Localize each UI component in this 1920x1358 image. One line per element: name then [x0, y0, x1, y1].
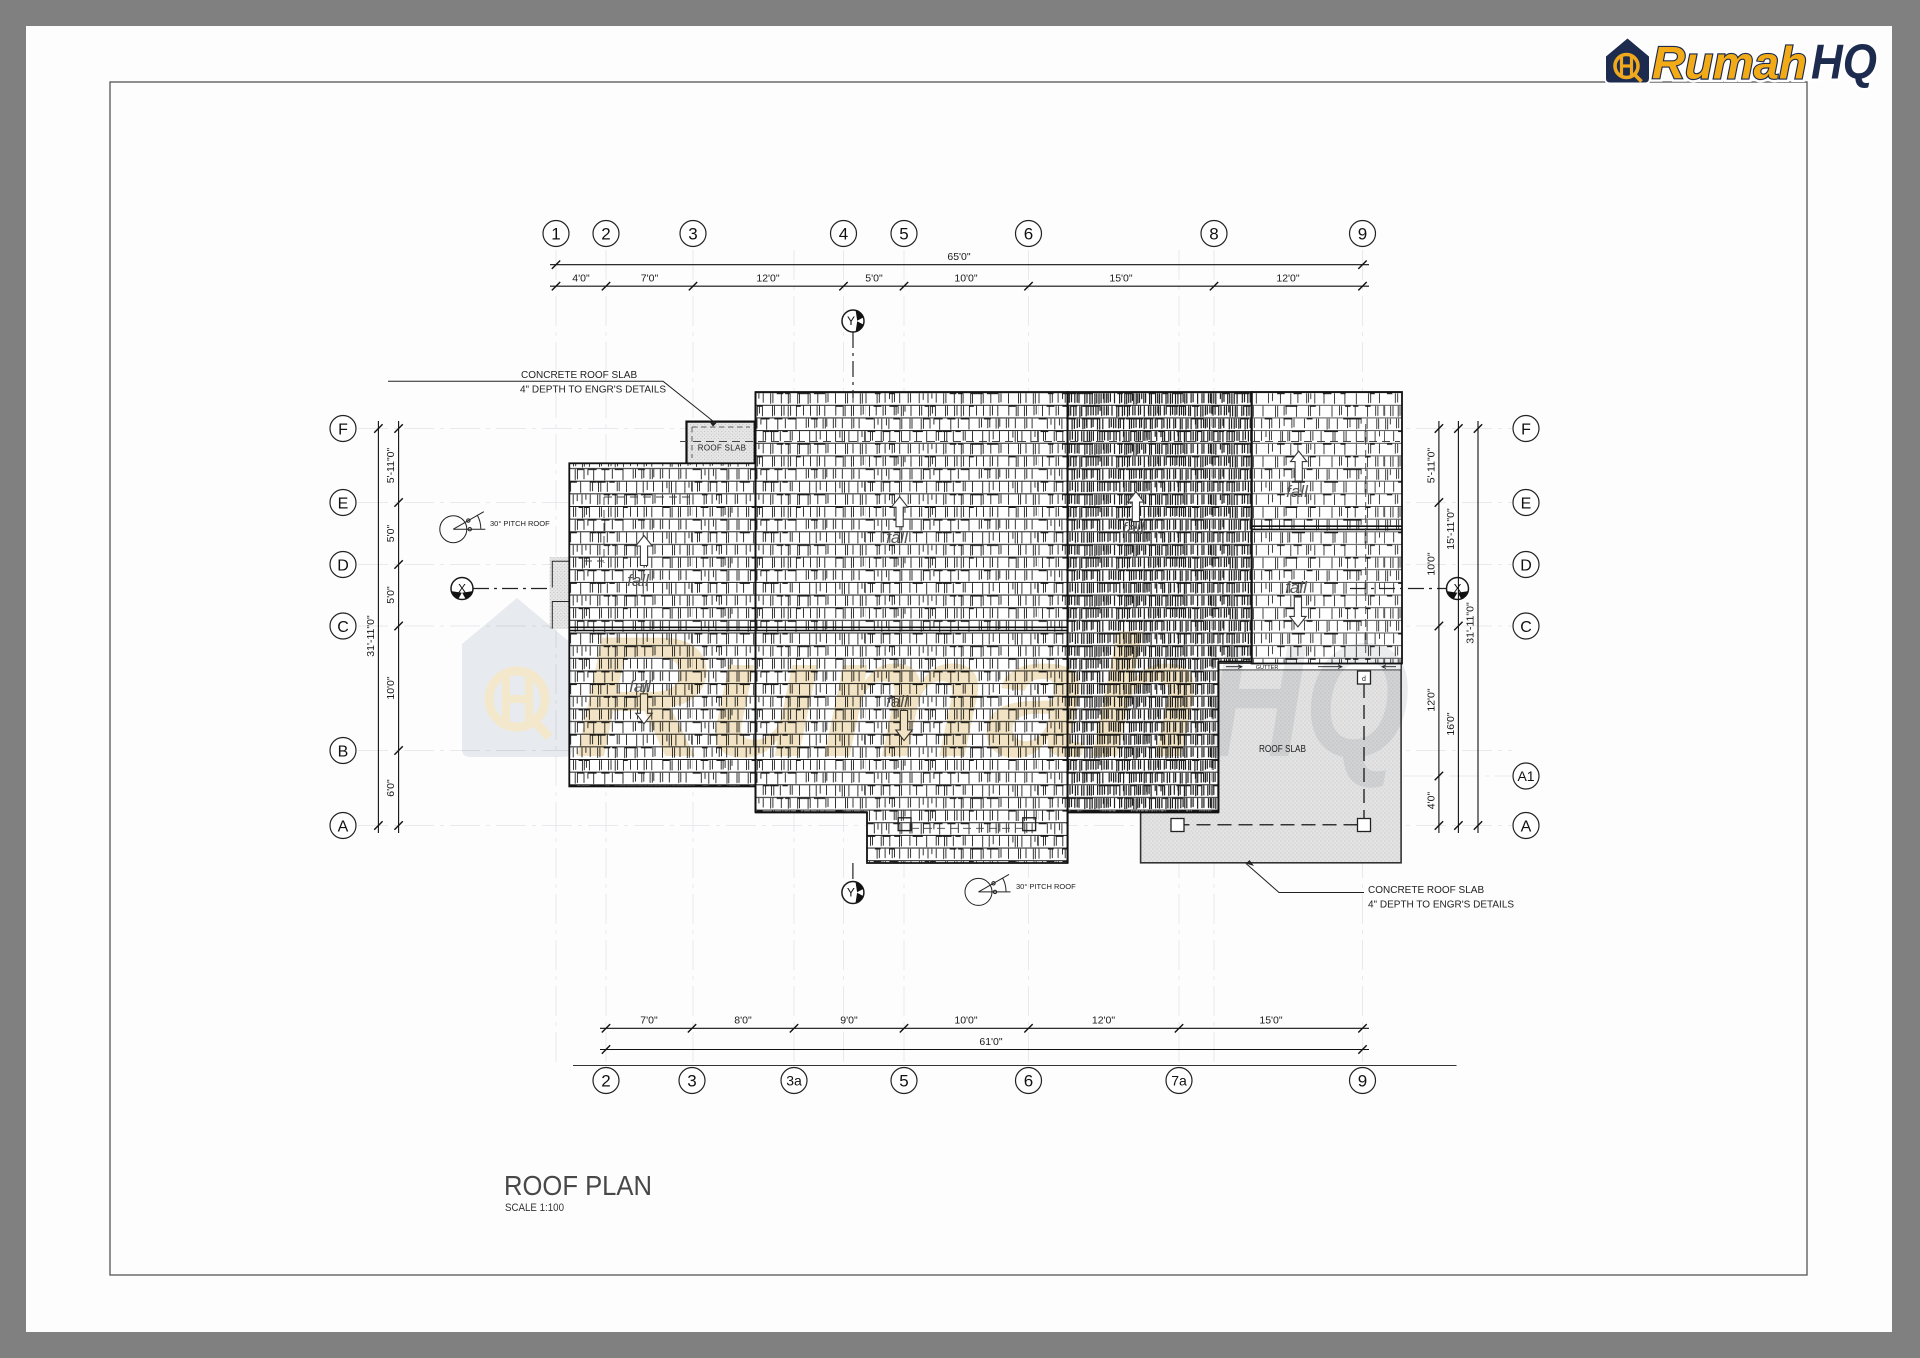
- svg-text:X: X: [458, 582, 466, 596]
- svg-text:3a: 3a: [786, 1073, 802, 1089]
- svg-text:7'0": 7'0": [641, 273, 659, 285]
- svg-text:8: 8: [1209, 225, 1218, 244]
- svg-text:3: 3: [688, 225, 697, 244]
- svg-text:15'0": 15'0": [1259, 1015, 1283, 1027]
- svg-text:12'0": 12'0": [1276, 273, 1300, 285]
- svg-text:6: 6: [1024, 225, 1033, 244]
- svg-text:4'0": 4'0": [1426, 792, 1438, 810]
- svg-text:A: A: [338, 818, 349, 835]
- svg-text:4" DEPTH TO ENGR'S DETAILS: 4" DEPTH TO ENGR'S DETAILS: [1368, 900, 1514, 911]
- svg-text:10'0": 10'0": [1426, 552, 1438, 576]
- svg-text:B: B: [338, 743, 349, 760]
- svg-text:fall: fall: [1286, 482, 1309, 501]
- svg-text:C: C: [337, 619, 349, 636]
- svg-text:CONCRETE ROOF SLAB: CONCRETE ROOF SLAB: [521, 370, 637, 381]
- svg-text:5'0": 5'0": [865, 273, 883, 285]
- svg-text:Rumah: Rumah: [1652, 38, 1807, 89]
- svg-text:ROOF PLAN: ROOF PLAN: [504, 1170, 652, 1201]
- svg-text:X: X: [1453, 582, 1461, 596]
- svg-text:Rumah: Rumah: [574, 601, 1202, 793]
- svg-text:E: E: [1521, 495, 1532, 512]
- svg-text:A: A: [1521, 818, 1532, 835]
- svg-text:D: D: [1520, 557, 1532, 574]
- svg-text:fall: fall: [627, 571, 650, 590]
- svg-text:12'0": 12'0": [1092, 1015, 1116, 1027]
- svg-text:10'0": 10'0": [385, 676, 397, 700]
- svg-text:30° PITCH ROOF: 30° PITCH ROOF: [490, 519, 550, 528]
- svg-text:15'-11"0": 15'-11"0": [1445, 508, 1457, 550]
- svg-text:9'0": 9'0": [840, 1015, 858, 1027]
- svg-text:65'0": 65'0": [947, 251, 971, 263]
- svg-text:31'-11"0": 31'-11"0": [365, 615, 377, 657]
- svg-text:9: 9: [1358, 1072, 1367, 1091]
- svg-text:E: E: [338, 495, 349, 512]
- svg-text:5: 5: [899, 1072, 908, 1091]
- svg-text:F: F: [1521, 421, 1531, 438]
- svg-text:6'0": 6'0": [385, 779, 397, 797]
- svg-text:SCALE 1:100: SCALE 1:100: [505, 1202, 564, 1214]
- svg-text:F: F: [338, 421, 348, 438]
- svg-text:A1: A1: [1517, 768, 1534, 784]
- svg-text:HQ: HQ: [1811, 36, 1877, 90]
- svg-text:5'-11"0": 5'-11"0": [1426, 447, 1438, 483]
- svg-text:10'0": 10'0": [954, 273, 978, 285]
- svg-text:15'0": 15'0": [1109, 273, 1133, 285]
- svg-text:5'0": 5'0": [385, 586, 397, 604]
- svg-text:10'0": 10'0": [954, 1015, 978, 1027]
- svg-text:Y: Y: [847, 314, 855, 328]
- svg-text:D: D: [337, 557, 349, 574]
- svg-text:16'0": 16'0": [1445, 712, 1457, 736]
- svg-text:12'0": 12'0": [756, 273, 780, 285]
- svg-text:12'0": 12'0": [1426, 688, 1438, 712]
- svg-text:4" DEPTH TO ENGR'S DETAILS: 4" DEPTH TO ENGR'S DETAILS: [520, 385, 666, 396]
- svg-text:Y: Y: [847, 886, 855, 900]
- svg-text:fall: fall: [886, 528, 909, 547]
- svg-text:HQ: HQ: [1206, 610, 1410, 791]
- svg-text:6: 6: [1024, 1072, 1033, 1091]
- svg-text:7'0": 7'0": [640, 1015, 658, 1027]
- svg-text:ROOF SLAB: ROOF SLAB: [698, 444, 747, 453]
- svg-text:8'0": 8'0": [734, 1015, 752, 1027]
- svg-text:61'0": 61'0": [979, 1036, 1003, 1048]
- svg-text:4: 4: [839, 225, 848, 244]
- svg-text:C: C: [1520, 619, 1532, 636]
- svg-text:9: 9: [1358, 225, 1367, 244]
- svg-text:CONCRETE ROOF SLAB: CONCRETE ROOF SLAB: [1368, 885, 1484, 896]
- svg-text:1: 1: [551, 225, 560, 244]
- svg-text:4'0": 4'0": [572, 273, 590, 285]
- svg-text:fall: fall: [1285, 578, 1308, 597]
- svg-text:fall: fall: [1122, 519, 1145, 538]
- svg-text:31'-11"0": 31'-11"0": [1465, 602, 1477, 644]
- svg-text:5: 5: [899, 225, 908, 244]
- svg-text:7a: 7a: [1171, 1073, 1187, 1089]
- svg-text:5'0": 5'0": [385, 525, 397, 543]
- svg-text:3: 3: [687, 1072, 696, 1091]
- svg-text:2: 2: [601, 225, 610, 244]
- svg-text:2: 2: [601, 1072, 610, 1091]
- svg-text:5'-11"0": 5'-11"0": [385, 447, 397, 483]
- svg-text:30° PITCH ROOF: 30° PITCH ROOF: [1016, 882, 1076, 891]
